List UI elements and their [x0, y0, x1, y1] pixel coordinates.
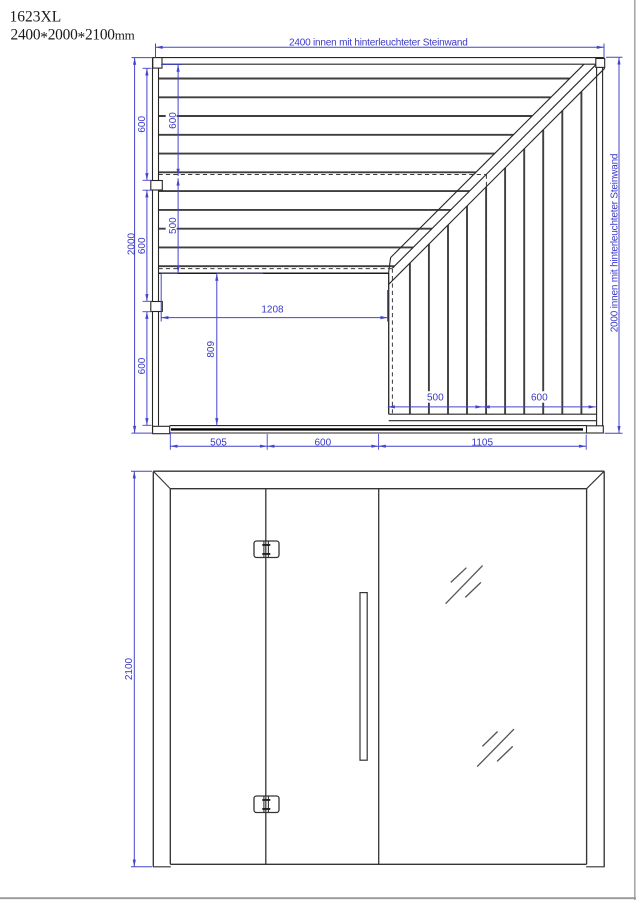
- svg-text:1208: 1208: [261, 305, 284, 316]
- svg-text:600: 600: [314, 437, 331, 448]
- svg-text:500: 500: [427, 392, 444, 403]
- svg-text:2100: 2100: [124, 657, 135, 680]
- svg-text:2400 innen mit hinterleuchtete: 2400 innen mit hinterleuchteter Steinwan…: [289, 37, 468, 48]
- svg-text:2000: 2000: [127, 232, 138, 255]
- svg-text:505: 505: [210, 437, 227, 448]
- svg-text:600: 600: [137, 357, 148, 374]
- svg-text:600: 600: [137, 237, 148, 254]
- svg-text:600: 600: [531, 392, 548, 403]
- svg-text:809: 809: [206, 341, 217, 358]
- svg-text:2000 innen mit hinterleuchtete: 2000 innen mit hinterleuchteter Steinwan…: [610, 154, 621, 333]
- svg-text:1623XL: 1623XL: [10, 8, 62, 25]
- svg-text:600: 600: [168, 112, 179, 129]
- svg-text:500: 500: [168, 217, 179, 234]
- svg-text:1105: 1105: [472, 437, 494, 448]
- svg-text:600: 600: [137, 116, 148, 133]
